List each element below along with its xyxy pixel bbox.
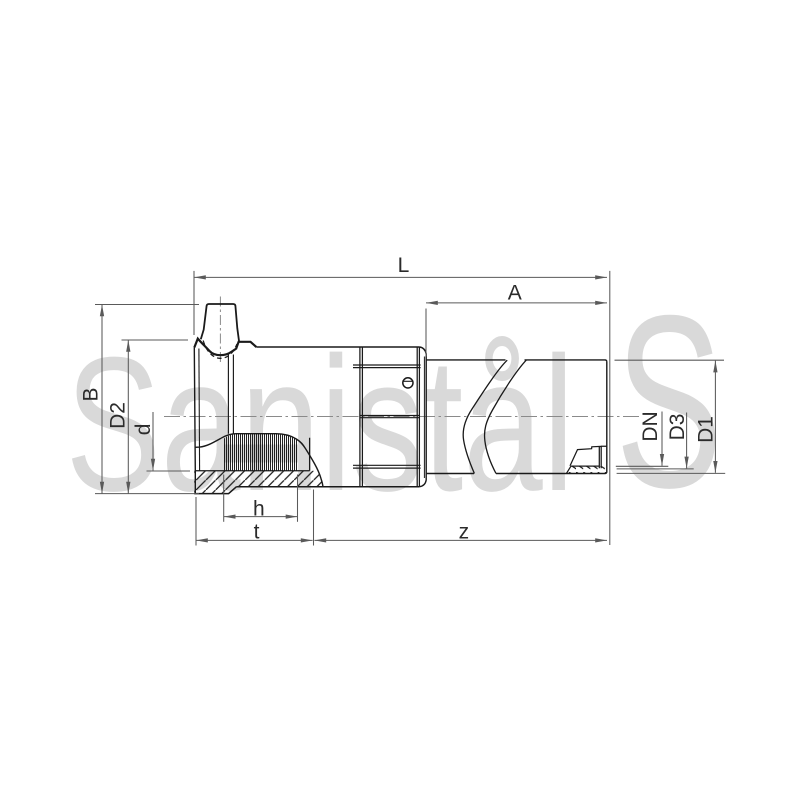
svg-text:A: A (508, 281, 522, 304)
svg-text:B: B (80, 387, 103, 401)
svg-text:L: L (398, 254, 410, 277)
svg-text:DN: DN (639, 411, 662, 441)
svg-text:D2: D2 (107, 402, 130, 429)
svg-text:S: S (615, 265, 722, 540)
svg-text:t: t (254, 521, 260, 544)
svg-text:h: h (253, 497, 265, 520)
svg-text:D3: D3 (666, 414, 689, 441)
svg-text:z: z (459, 521, 470, 544)
svg-text:d: d (132, 424, 155, 436)
svg-text:D1: D1 (695, 416, 718, 443)
